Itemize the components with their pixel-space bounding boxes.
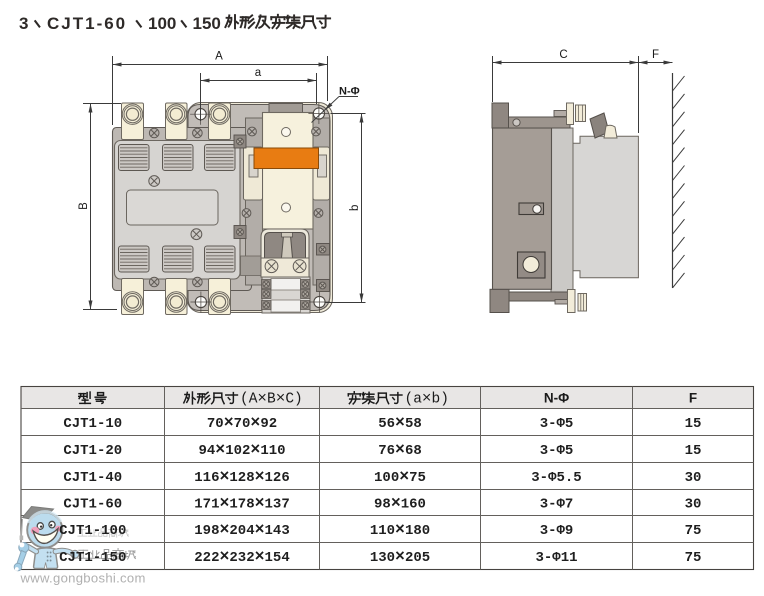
- svg-text:3-Φ9: 3-Φ9: [540, 523, 574, 539]
- svg-text:56×58: 56×58: [378, 413, 422, 432]
- svg-text:3-Φ11: 3-Φ11: [535, 550, 577, 566]
- svg-text:CJT1-100: CJT1-100: [59, 523, 126, 539]
- svg-text:3: 3: [19, 14, 28, 33]
- svg-text:100×75: 100×75: [374, 467, 426, 486]
- svg-text:3-Φ5.5: 3-Φ5.5: [531, 470, 581, 486]
- svg-text:15: 15: [685, 416, 702, 432]
- svg-text:N-Φ: N-Φ: [544, 391, 569, 406]
- svg-text:3-Φ5: 3-Φ5: [540, 443, 574, 459]
- svg-text:b: b: [349, 205, 361, 211]
- svg-text:75: 75: [685, 523, 702, 539]
- svg-text:www.gongboshi.com: www.gongboshi.com: [20, 571, 146, 586]
- svg-text:76×68: 76×68: [378, 440, 422, 459]
- svg-text:171×178×137: 171×178×137: [194, 494, 289, 513]
- svg-text:N-Φ: N-Φ: [339, 86, 360, 98]
- svg-text:B: B: [78, 202, 90, 210]
- svg-text:30: 30: [685, 470, 702, 486]
- svg-text:C: C: [559, 49, 567, 61]
- svg-text:CJT1-10: CJT1-10: [63, 416, 122, 432]
- svg-text:150: 150: [193, 14, 221, 33]
- svg-text:130×205: 130×205: [370, 547, 430, 566]
- svg-text:F: F: [689, 391, 697, 406]
- svg-text:94×102×110: 94×102×110: [198, 440, 285, 459]
- svg-text:116×128×126: 116×128×126: [194, 467, 289, 486]
- svg-text:198×204×143: 198×204×143: [194, 520, 289, 539]
- svg-text:30: 30: [685, 497, 702, 513]
- svg-text:CJT1-40: CJT1-40: [63, 470, 122, 486]
- svg-text:98×160: 98×160: [374, 494, 426, 513]
- svg-text:CJT1-60: CJT1-60: [47, 14, 127, 33]
- svg-text:A: A: [215, 51, 223, 63]
- svg-text:70×70×92: 70×70×92: [207, 413, 277, 432]
- svg-text:CJT1-20: CJT1-20: [63, 443, 122, 459]
- svg-text:222×232×154: 222×232×154: [194, 547, 289, 566]
- svg-text:3-Φ5: 3-Φ5: [540, 416, 574, 432]
- svg-text:(a×b): (a×b): [405, 390, 449, 408]
- svg-text:75: 75: [685, 550, 702, 566]
- svg-text:(A×B×C): (A×B×C): [240, 390, 303, 408]
- svg-text:F: F: [652, 49, 659, 61]
- svg-text:15: 15: [685, 443, 702, 459]
- svg-text:110×180: 110×180: [370, 520, 430, 539]
- svg-text:a: a: [255, 67, 262, 79]
- svg-text:100: 100: [148, 14, 176, 33]
- svg-text:3-Φ7: 3-Φ7: [540, 497, 574, 513]
- svg-text:CJT1-60: CJT1-60: [63, 497, 122, 513]
- svg-text:CJT1-150: CJT1-150: [59, 550, 126, 566]
